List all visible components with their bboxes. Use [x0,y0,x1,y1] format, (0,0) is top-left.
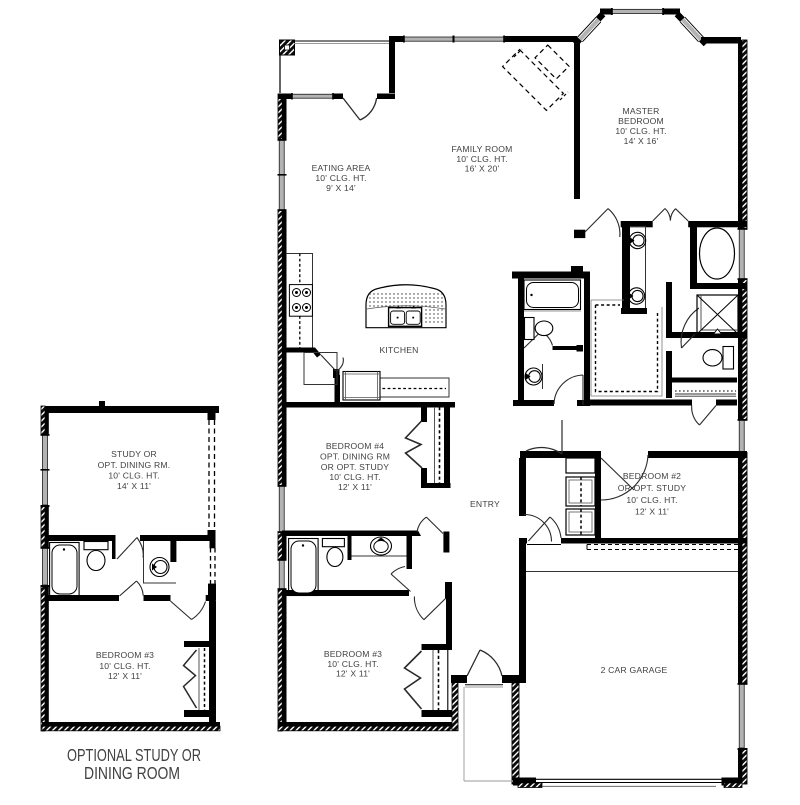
svg-text:OPTIONAL STUDY OR: OPTIONAL STUDY OR [67,745,201,765]
svg-text:10' CLG. HT.: 10' CLG. HT. [329,472,380,482]
svg-text:BEDROOM #3: BEDROOM #3 [324,649,382,659]
svg-text:FAMILY ROOM: FAMILY ROOM [451,144,512,154]
svg-text:14' X 16': 14' X 16' [624,136,659,146]
svg-text:10' CLG. HT.: 10' CLG. HT. [315,173,366,183]
svg-text:2 CAR GARAGE: 2 CAR GARAGE [601,665,668,675]
svg-text:12' X 11': 12' X 11' [336,669,370,679]
svg-text:12' X 11': 12' X 11' [338,482,372,492]
svg-text:10' CLG. HT.: 10' CLG. HT. [626,495,677,505]
svg-text:10' CLG. HT.: 10' CLG. HT. [456,154,507,164]
svg-text:12' X 11': 12' X 11' [635,507,669,517]
svg-text:OPT. DINING RM.: OPT. DINING RM. [98,460,171,470]
svg-text:OPT. DINING RM: OPT. DINING RM [320,452,390,462]
svg-text:KITCHEN: KITCHEN [379,345,418,355]
svg-text:10' CLG. HT.: 10' CLG. HT. [99,661,150,671]
svg-text:DINING ROOM: DINING ROOM [84,763,180,783]
svg-text:10' CLG. HT.: 10' CLG. HT. [615,126,666,136]
svg-text:12' X 11': 12' X 11' [108,671,142,681]
svg-text:9' X 14': 9' X 14' [326,183,356,193]
svg-text:BEDROOM #4: BEDROOM #4 [326,441,384,451]
svg-text:10' CLG. HT.: 10' CLG. HT. [327,659,378,669]
svg-text:BEDROOM #3: BEDROOM #3 [96,650,154,660]
svg-text:EATING AREA: EATING AREA [312,163,371,173]
svg-text:14' X 11': 14' X 11' [117,481,151,491]
svg-text:ENTRY: ENTRY [470,499,500,509]
svg-text:16' X 20': 16' X 20' [465,164,500,174]
svg-text:BEDROOM: BEDROOM [618,116,664,126]
svg-text:OR OPT. STUDY: OR OPT. STUDY [618,483,687,493]
svg-text:10' CLG. HT.: 10' CLG. HT. [108,471,159,481]
svg-text:STUDY OR: STUDY OR [111,449,157,459]
svg-text:MASTER: MASTER [622,106,659,116]
svg-text:BEDROOM #2: BEDROOM #2 [623,471,681,481]
svg-text:OR OPT. STUDY: OR OPT. STUDY [321,462,390,472]
